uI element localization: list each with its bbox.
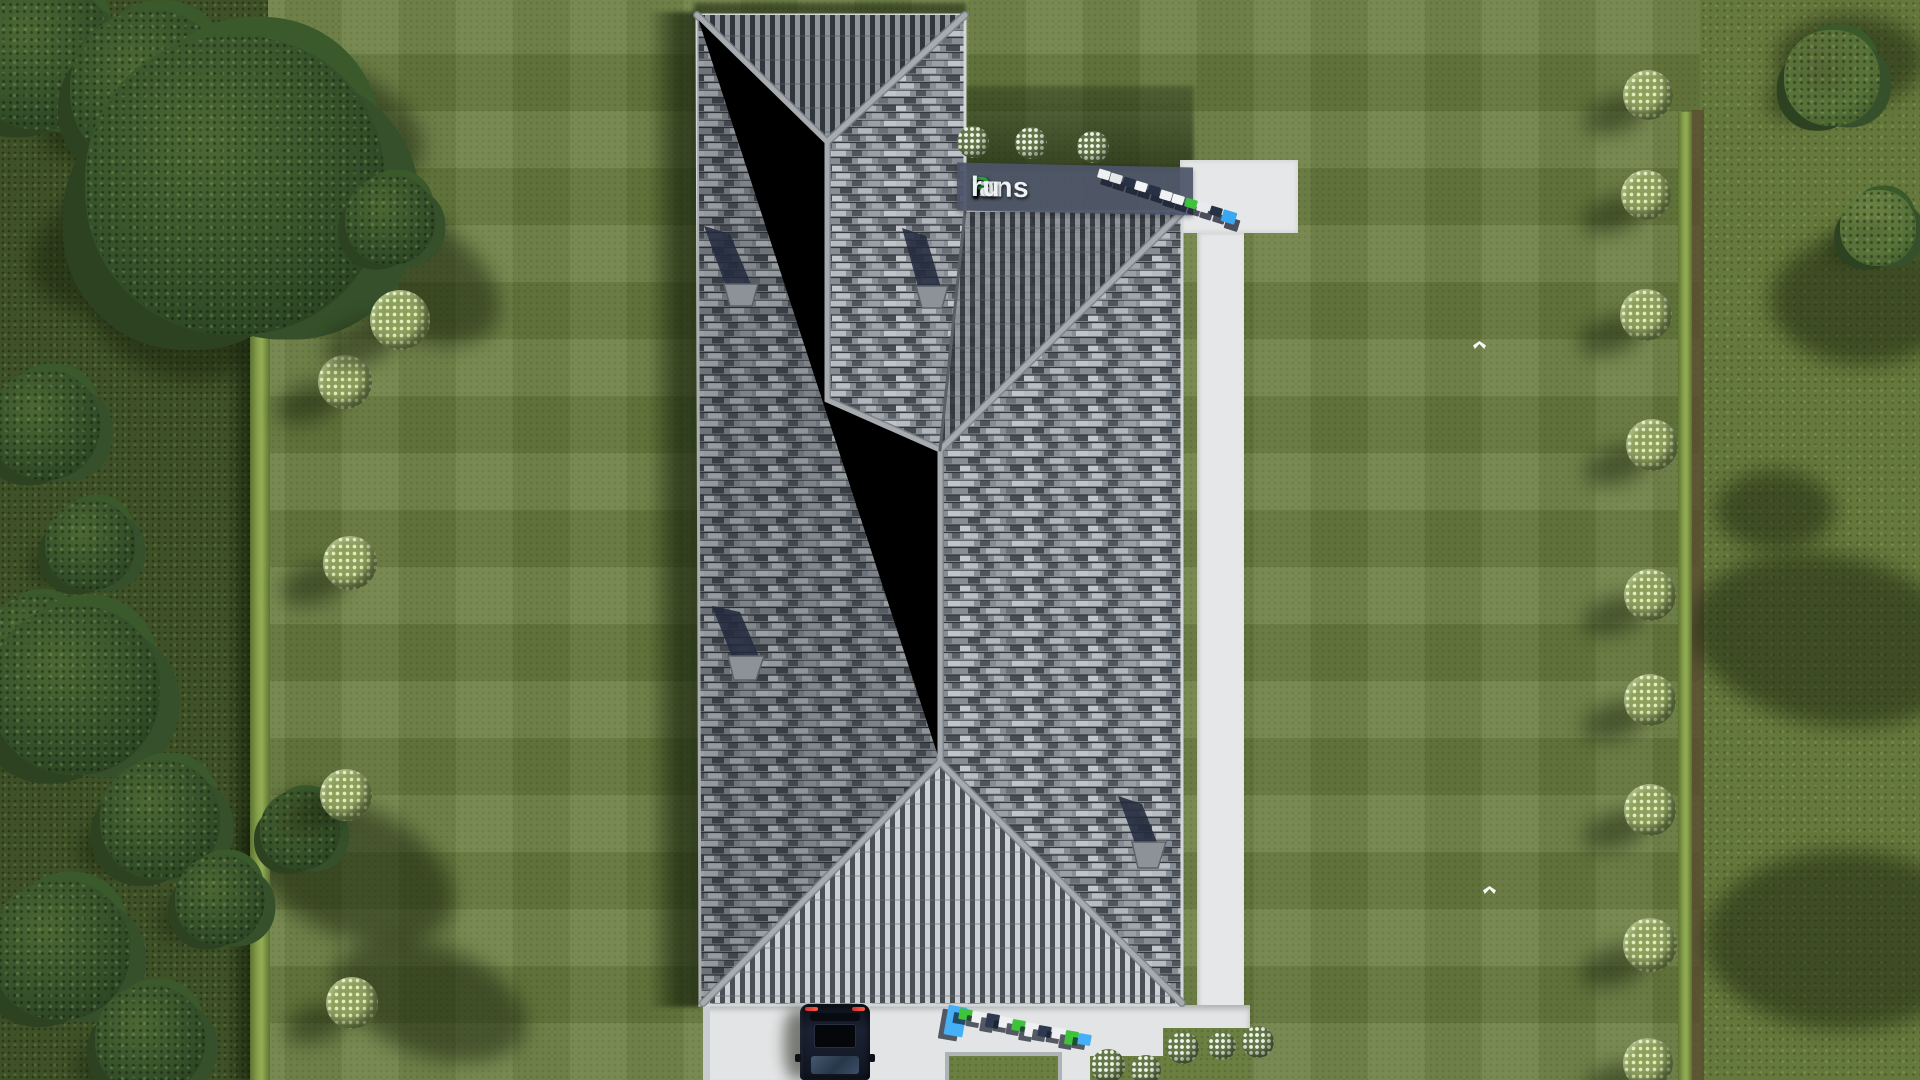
watermark-3d-letter xyxy=(1038,1025,1053,1038)
bush xyxy=(370,290,430,350)
flower-bush xyxy=(1167,1032,1199,1064)
car-mirror-left xyxy=(795,1054,801,1062)
taillight-right xyxy=(852,1007,865,1011)
chimney xyxy=(916,286,948,308)
flower-bush xyxy=(957,126,989,158)
watermark-3d-letter xyxy=(1077,1033,1092,1046)
bush xyxy=(323,536,377,590)
watermark-3d-letter xyxy=(984,1013,999,1029)
flower-bush xyxy=(1077,131,1109,163)
bush xyxy=(1623,1038,1673,1080)
site-render-viewport: FixPlans.ru xyxy=(0,0,1920,1080)
watermark-letters-ru: ru xyxy=(971,171,1000,204)
car-sunroof xyxy=(814,1024,856,1048)
bush xyxy=(1621,170,1671,220)
car-rear-window xyxy=(810,1013,860,1021)
taillight-left xyxy=(805,1007,818,1011)
bush xyxy=(326,977,378,1029)
bush xyxy=(1624,674,1676,726)
watermark-3d-letter xyxy=(972,1011,987,1024)
car-mirror-right xyxy=(869,1054,875,1062)
car-windshield xyxy=(811,1056,859,1074)
bush xyxy=(1623,918,1677,972)
flower-bush xyxy=(1208,1032,1236,1060)
watermark-3d-letter xyxy=(1011,1019,1026,1032)
car xyxy=(800,1004,870,1080)
bush xyxy=(320,769,372,821)
flower-bush xyxy=(1015,127,1047,159)
flower-bush xyxy=(1091,1049,1125,1080)
bush xyxy=(1624,784,1676,836)
flower-bush xyxy=(1242,1026,1274,1058)
bush xyxy=(1626,419,1678,471)
flower-bush xyxy=(1131,1055,1161,1080)
bush xyxy=(1624,569,1676,621)
chimney xyxy=(724,284,758,306)
bush xyxy=(1620,289,1672,341)
bush xyxy=(1623,70,1673,120)
